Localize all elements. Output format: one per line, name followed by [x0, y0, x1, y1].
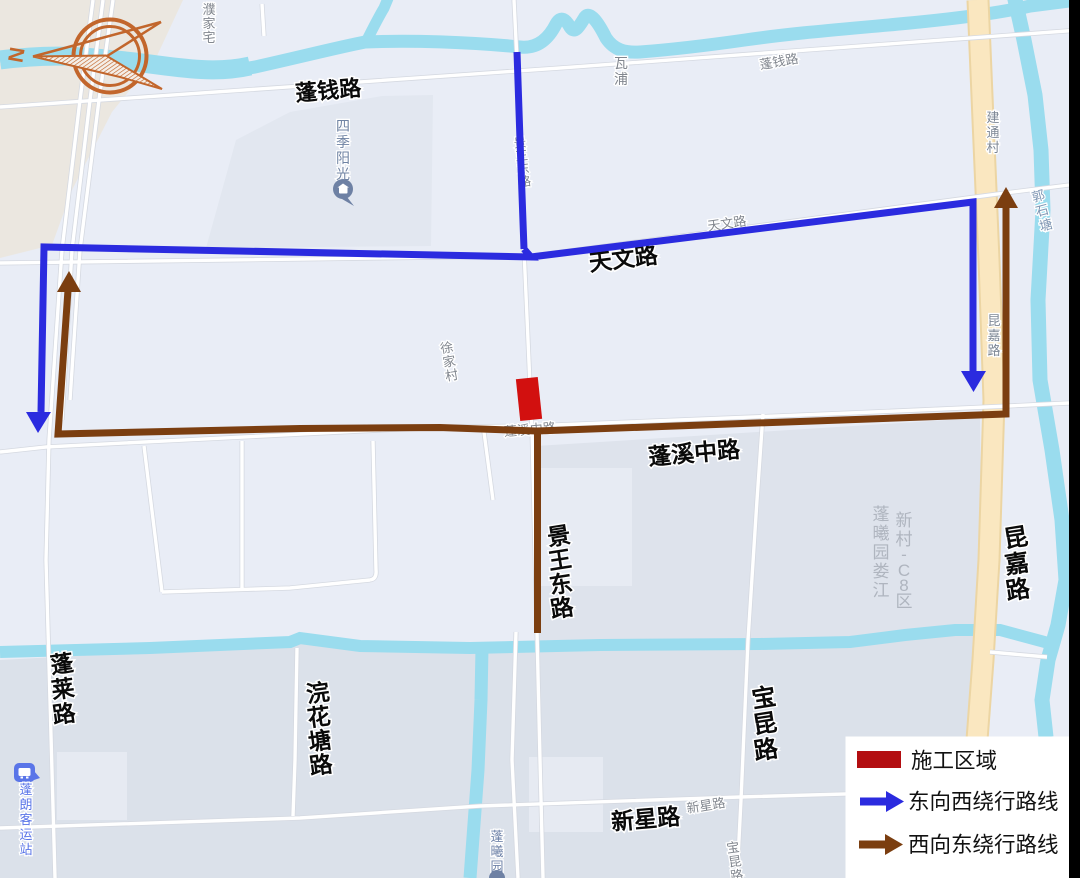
svg-text:家: 家	[202, 16, 215, 31]
svg-text:西向东绕行路线: 西向东绕行路线	[908, 833, 1059, 857]
svg-text:区: 区	[896, 592, 913, 611]
svg-text:村: 村	[986, 140, 999, 155]
svg-text:路: 路	[729, 867, 744, 878]
svg-text:嘉: 嘉	[987, 328, 1000, 343]
svg-text:阳: 阳	[336, 150, 350, 166]
svg-text:四: 四	[336, 118, 350, 134]
svg-text:站: 站	[19, 842, 32, 857]
svg-text:曦: 曦	[490, 844, 503, 859]
svg-text:曦: 曦	[873, 524, 890, 543]
svg-text:东向西绕行路线: 东向西绕行路线	[908, 790, 1059, 814]
svg-text:施工区域: 施工区域	[911, 749, 997, 773]
svg-text:朗: 朗	[19, 797, 32, 812]
svg-text:蓬: 蓬	[19, 782, 32, 797]
svg-text:运: 运	[19, 827, 32, 842]
svg-text:娄: 娄	[873, 562, 890, 581]
svg-text:路: 路	[51, 699, 78, 728]
svg-text:蓬: 蓬	[490, 829, 503, 844]
svg-text:路: 路	[987, 343, 1000, 358]
svg-text:建: 建	[986, 110, 999, 125]
svg-text:新: 新	[896, 511, 913, 530]
svg-text:昆: 昆	[987, 313, 1000, 328]
svg-text:路: 路	[308, 750, 335, 779]
svg-text:瓦: 瓦	[614, 55, 628, 71]
svg-text:江: 江	[873, 581, 890, 600]
svg-text:蓬: 蓬	[873, 505, 890, 524]
svg-text:季: 季	[336, 134, 350, 150]
svg-text:宅: 宅	[202, 30, 215, 45]
svg-text:通: 通	[986, 125, 999, 140]
svg-text:浦: 浦	[614, 71, 628, 87]
svg-text:濮: 濮	[202, 2, 215, 17]
svg-text:园: 园	[873, 543, 890, 562]
svg-text:客: 客	[19, 812, 32, 827]
svg-text:村: 村	[444, 367, 459, 384]
